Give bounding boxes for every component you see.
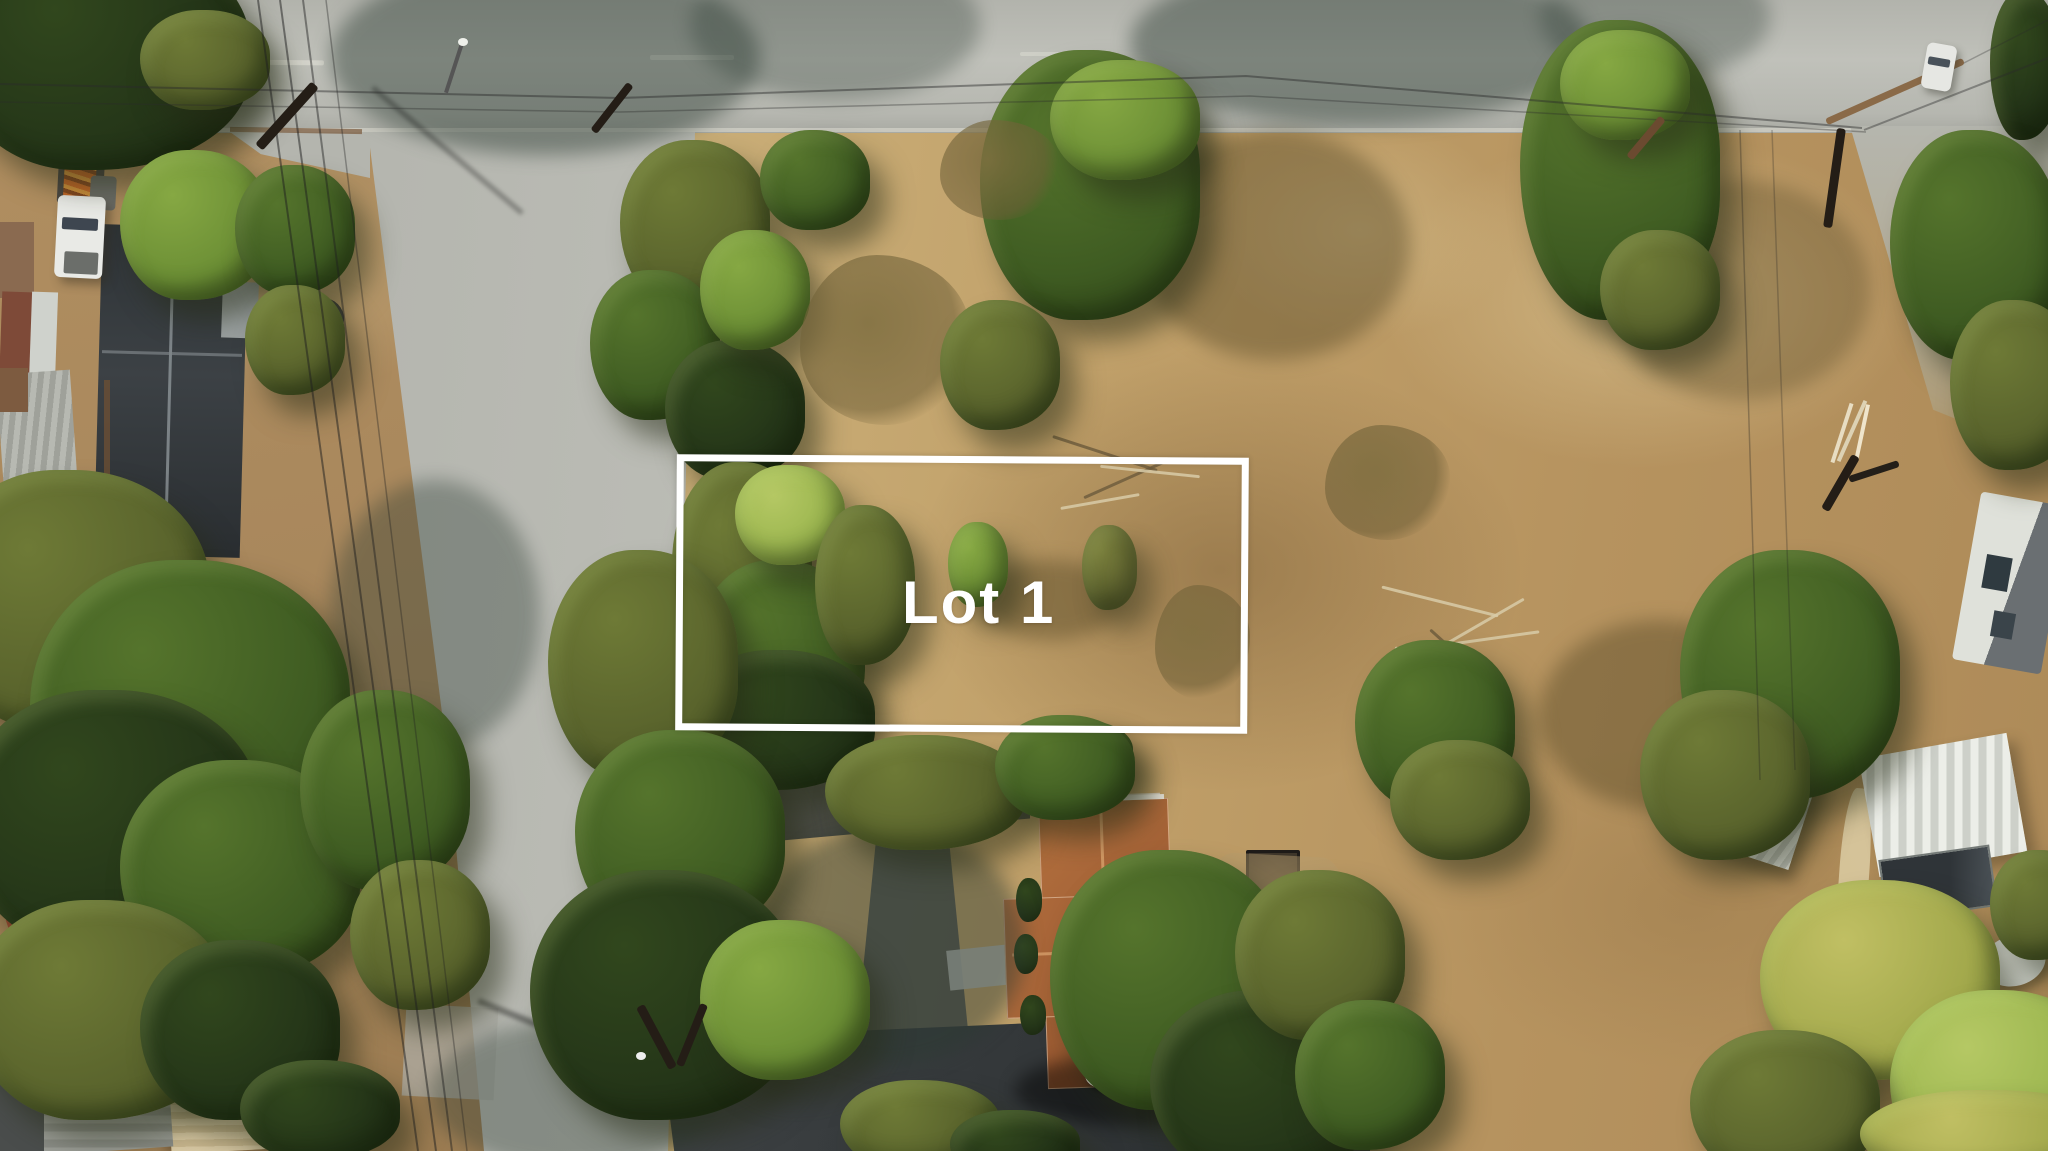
street-light-lamp <box>458 38 468 46</box>
pole-insulator <box>636 1052 646 1060</box>
aerial-photo: Lot 1 <box>0 0 2048 1151</box>
lot-label: Lot 1 <box>902 568 1055 637</box>
